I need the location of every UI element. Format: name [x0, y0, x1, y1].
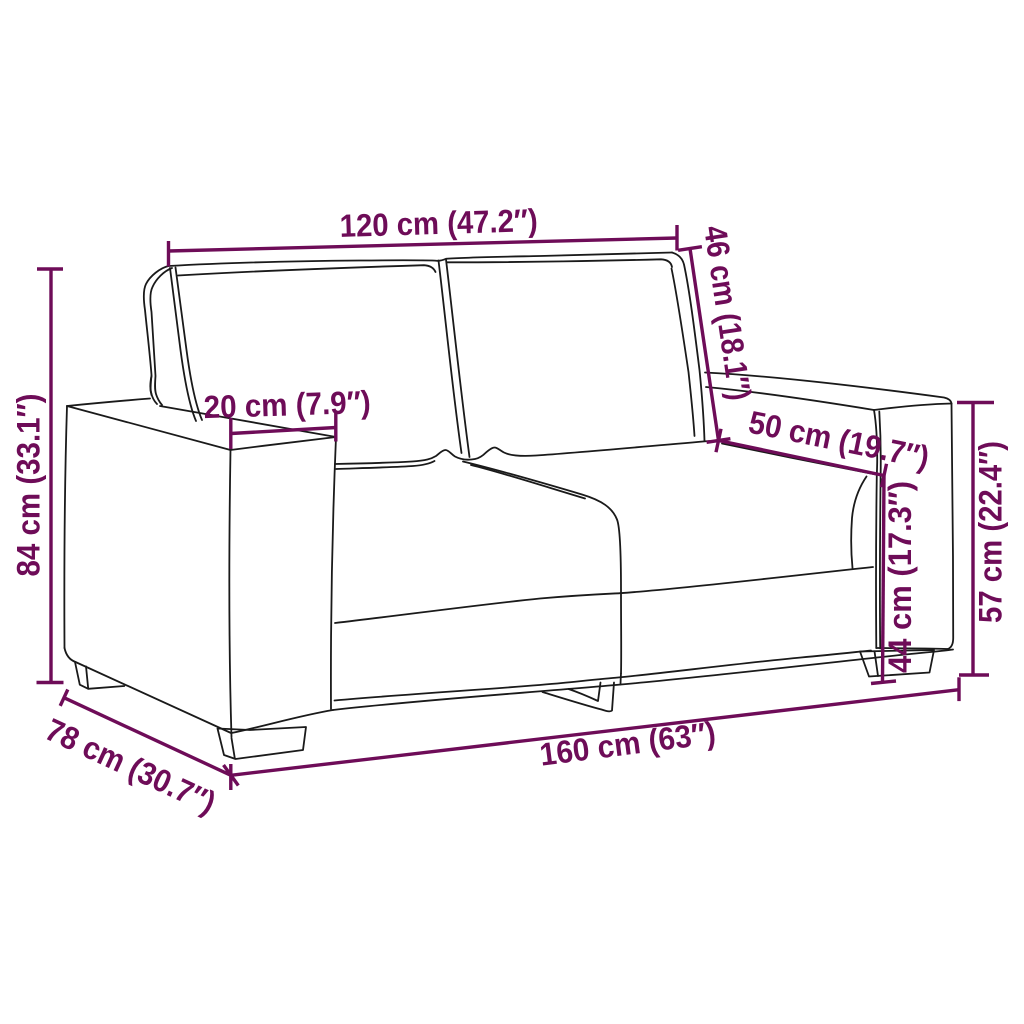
svg-text:44 cm (17.3″): 44 cm (17.3″): [882, 481, 918, 673]
svg-text:120 cm (47.2″): 120 cm (47.2″): [339, 202, 538, 244]
svg-text:57 cm (22.4″): 57 cm (22.4″): [973, 441, 1009, 623]
svg-text:84 cm (33.1″): 84 cm (33.1″): [11, 394, 47, 577]
svg-text:20 cm (7.9″): 20 cm (7.9″): [203, 384, 371, 425]
